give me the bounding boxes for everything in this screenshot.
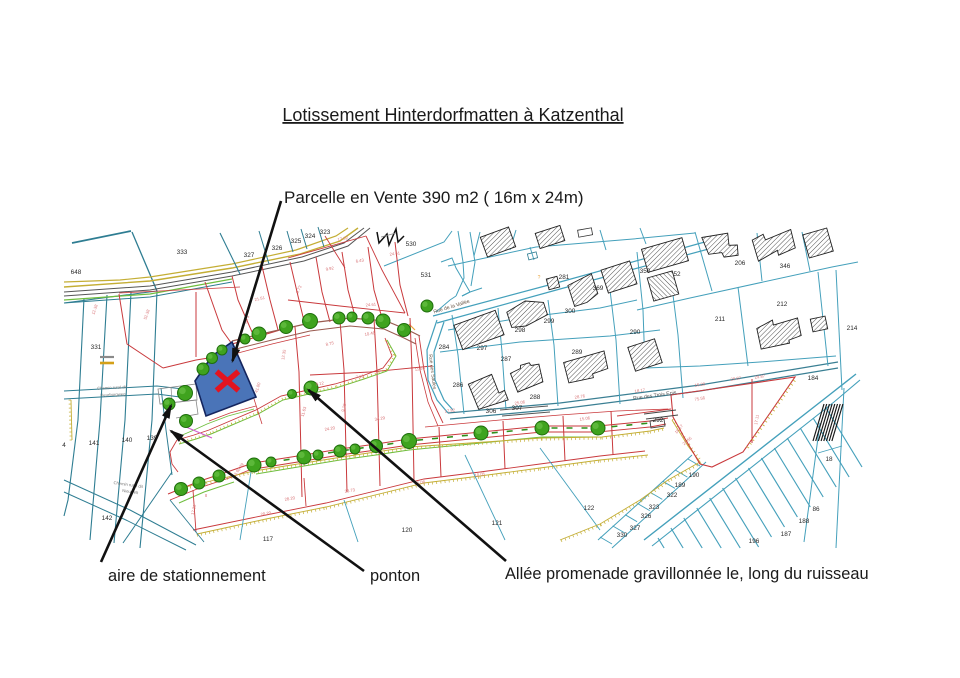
svg-text:Lotissement Hinterdorfmatten à: Lotissement Hinterdorfmatten à Katzentha… [282,105,623,125]
svg-text:184: 184 [808,375,819,382]
svg-text:18: 18 [825,456,833,463]
svg-text:?: ? [538,275,541,281]
svg-text:86: 86 [812,506,820,513]
svg-text:331: 331 [91,344,102,351]
svg-text:142: 142 [102,515,113,522]
svg-text:196: 196 [749,538,760,545]
svg-text:287: 287 [501,356,512,363]
svg-text:aire de stationnement: aire de stationnement [108,567,266,585]
svg-text:212: 212 [777,301,788,308]
svg-text:350: 350 [640,268,651,275]
svg-text:292: 292 [653,417,664,424]
svg-text:324: 324 [305,233,316,240]
svg-text:297: 297 [477,345,488,352]
svg-text:306: 306 [486,408,497,415]
svg-text:369: 369 [593,285,604,292]
svg-text:Allée promenade gravillonnée l: Allée promenade gravillonnée le, long du… [505,565,869,583]
svg-text:299: 299 [544,318,555,325]
svg-text:288: 288 [530,394,541,401]
svg-text:290: 290 [630,329,641,336]
svg-text:189: 189 [675,482,686,489]
svg-text:327: 327 [630,525,641,532]
svg-text:286: 286 [453,382,464,389]
svg-text:211: 211 [715,316,726,323]
svg-text:120: 120 [402,527,413,534]
svg-text:284: 284 [439,344,450,351]
svg-text:531: 531 [421,272,432,279]
svg-text:289: 289 [572,349,583,356]
svg-text:206: 206 [735,260,746,267]
svg-text:214: 214 [847,325,858,332]
svg-text:ponton: ponton [370,567,420,585]
svg-text:190: 190 [689,472,700,479]
svg-text:530: 530 [406,241,417,248]
svg-text:117: 117 [263,536,274,543]
svg-text:187: 187 [781,531,792,538]
svg-text:326: 326 [272,245,283,252]
svg-text:323: 323 [320,229,331,236]
svg-text:140: 140 [122,437,133,444]
svg-text:346: 346 [780,263,791,270]
svg-text:323: 323 [649,504,660,511]
svg-text:298: 298 [515,327,526,334]
svg-text:Parcelle en Vente 390 m2 ( 16m: Parcelle en Vente 390 m2 ( 16m x 24m) [284,188,584,207]
svg-text:122: 122 [584,505,595,512]
svg-text:121: 121 [492,520,503,527]
svg-text:325: 325 [291,238,302,245]
svg-text:322: 322 [667,492,678,499]
svg-text:327: 327 [244,252,255,259]
svg-text:52: 52 [673,271,681,278]
svg-text:300: 300 [565,308,576,315]
svg-text:141: 141 [89,440,100,447]
svg-text:333: 333 [177,249,188,256]
svg-text:4: 4 [62,442,66,449]
svg-text:648: 648 [71,269,82,276]
svg-text:326: 326 [641,513,652,520]
svg-text:188: 188 [799,518,810,525]
svg-text:307: 307 [512,405,523,412]
svg-text:330: 330 [617,532,628,539]
svg-text:281: 281 [559,274,570,281]
